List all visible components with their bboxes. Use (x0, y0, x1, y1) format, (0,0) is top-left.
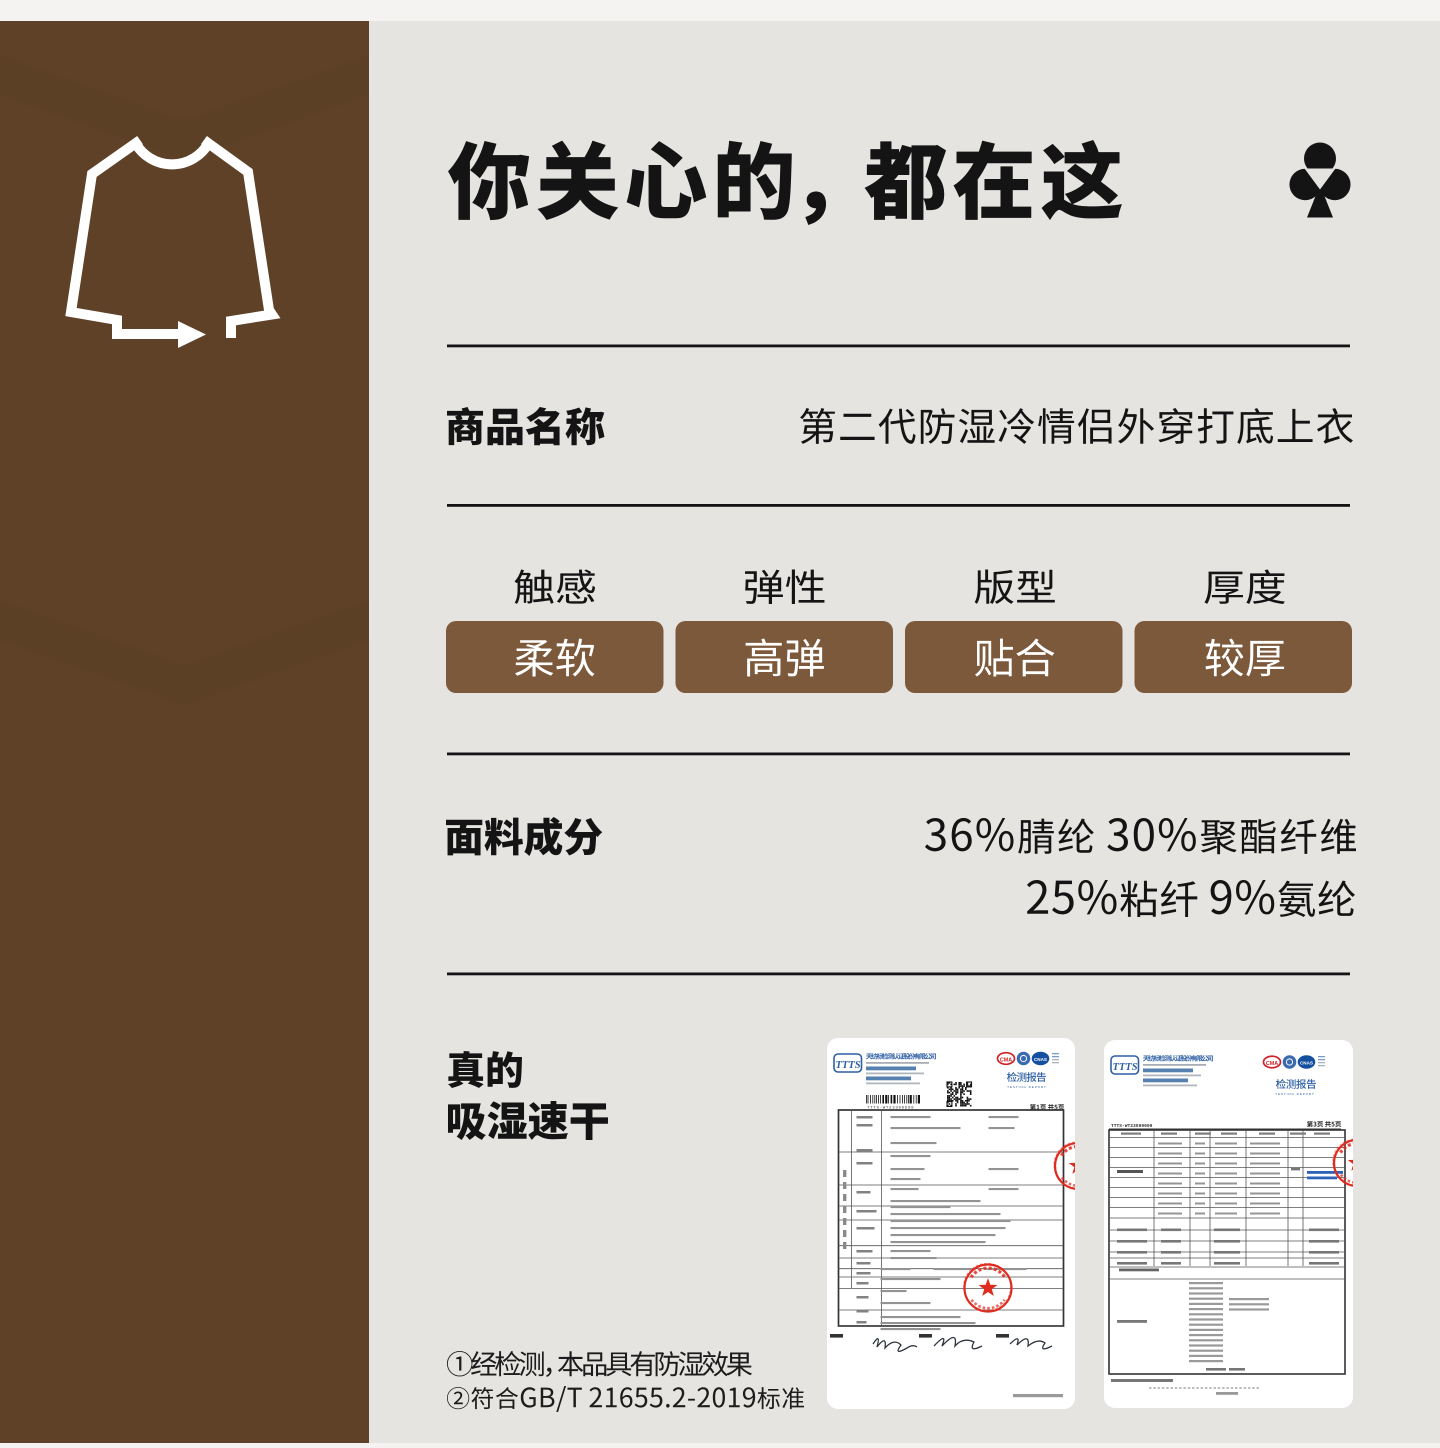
svg-text:TESTING REPORT: TESTING REPORT (1275, 1092, 1315, 1096)
svg-text:CMA: CMA (1266, 1061, 1278, 1067)
svg-text:TESTING REPORT: TESTING REPORT (1007, 1085, 1047, 1089)
svg-text:TTTS: TTTS (1112, 1062, 1137, 1073)
svg-text:TTTS-WT23599699: TTTS-WT23599699 (1111, 1123, 1153, 1129)
svg-text:TTTS: TTTS (835, 1060, 860, 1071)
svg-text:CNAS: CNAS (1034, 1057, 1047, 1062)
svg-text:CNAS: CNAS (1300, 1061, 1313, 1066)
svg-text:CMA: CMA (1000, 1058, 1012, 1064)
